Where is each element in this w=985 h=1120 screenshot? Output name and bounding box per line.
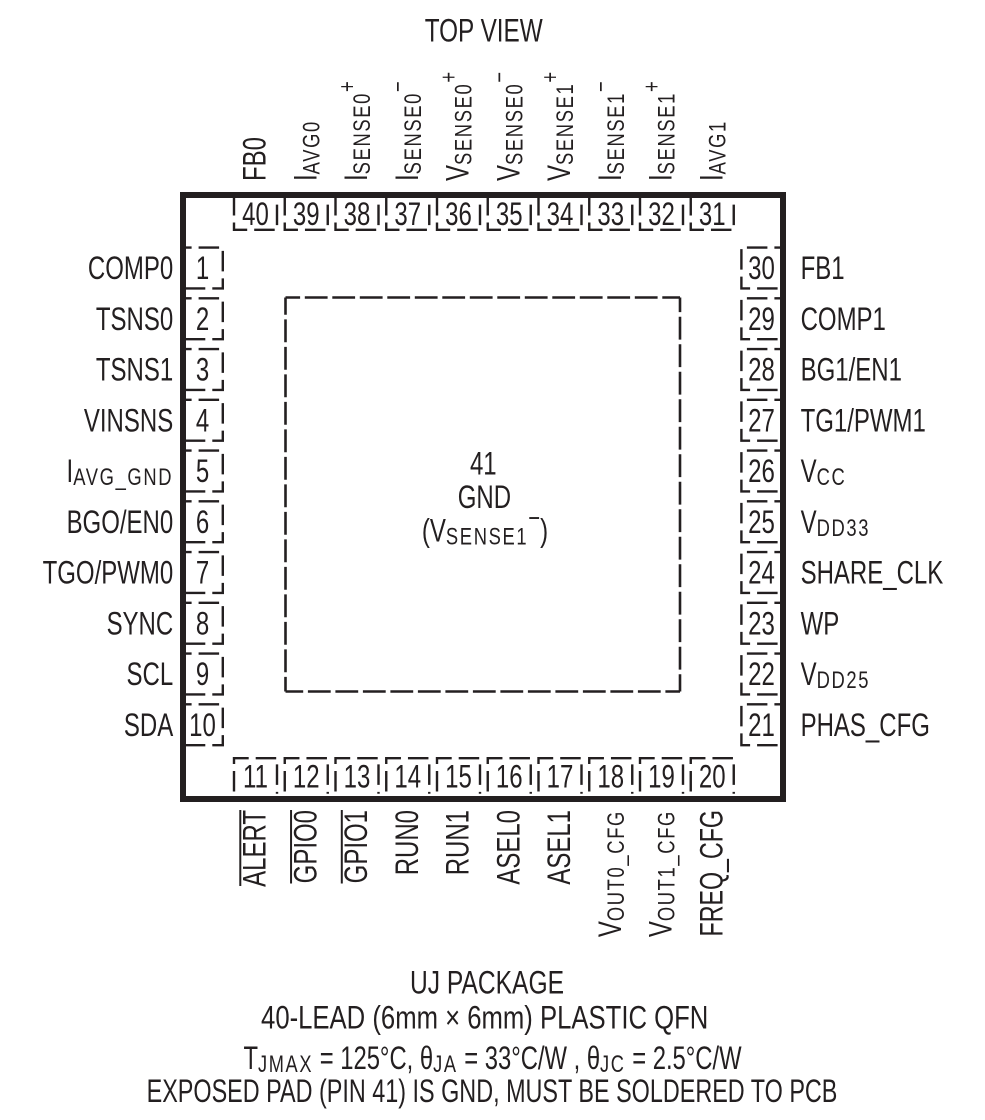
svg-text:12: 12 — [293, 758, 320, 794]
svg-text:FB1: FB1 — [801, 250, 845, 286]
svg-text:23: 23 — [748, 605, 775, 641]
svg-text:33: 33 — [597, 196, 624, 232]
svg-text:3: 3 — [196, 351, 209, 387]
svg-text:EXPOSED PAD (PIN 41) IS GND, M: EXPOSED PAD (PIN 41) IS GND, MUST BE SOL… — [147, 1073, 838, 1108]
svg-text:COMP0: COMP0 — [88, 250, 173, 286]
svg-text:22: 22 — [748, 656, 775, 692]
svg-text:21: 21 — [748, 706, 775, 742]
svg-text:41: 41 — [470, 445, 497, 481]
svg-text:WP: WP — [801, 605, 840, 641]
svg-text:BGO/EN0: BGO/EN0 — [67, 503, 174, 539]
svg-text:SCL: SCL — [127, 656, 174, 692]
svg-text:TG1/PWM1: TG1/PWM1 — [801, 402, 926, 438]
svg-text:8: 8 — [196, 605, 209, 641]
svg-text:BG1/EN1: BG1/EN1 — [801, 351, 902, 387]
svg-text:40: 40 — [242, 196, 269, 232]
svg-text:SYNC: SYNC — [107, 605, 174, 641]
svg-text:UJ PACKAGE: UJ PACKAGE — [410, 965, 564, 1001]
svg-text:31: 31 — [699, 196, 726, 232]
svg-text:39: 39 — [293, 196, 320, 232]
svg-text:14: 14 — [394, 758, 421, 794]
svg-text:GPIO0: GPIO0 — [287, 810, 323, 883]
svg-text:29: 29 — [748, 300, 775, 336]
svg-text:4: 4 — [196, 402, 209, 438]
svg-text:GPIO1: GPIO1 — [338, 810, 374, 883]
svg-text:TSNS0: TSNS0 — [96, 300, 173, 336]
svg-text:ASEL1: ASEL1 — [541, 810, 577, 885]
svg-text:FB0: FB0 — [236, 137, 272, 181]
svg-text:2: 2 — [196, 300, 209, 336]
svg-text:28: 28 — [748, 351, 775, 387]
svg-text:9: 9 — [196, 656, 209, 692]
svg-text:25: 25 — [748, 503, 775, 539]
svg-text:34: 34 — [547, 196, 574, 232]
svg-text:SDA: SDA — [124, 706, 173, 742]
svg-text:VINSNS: VINSNS — [84, 402, 173, 438]
svg-text:26: 26 — [748, 453, 775, 489]
svg-text:17: 17 — [547, 758, 574, 794]
svg-text:37: 37 — [394, 196, 421, 232]
svg-text:FREQ_CFG: FREQ_CFG — [694, 810, 729, 936]
svg-text:16: 16 — [496, 758, 523, 794]
svg-text:10: 10 — [189, 706, 216, 742]
svg-text:30: 30 — [748, 250, 775, 286]
svg-text:20: 20 — [699, 758, 726, 794]
svg-text:5: 5 — [196, 453, 209, 489]
svg-text:RUN0: RUN0 — [388, 810, 424, 875]
svg-text:PHAS_CFG: PHAS_CFG — [801, 706, 930, 742]
svg-text:24: 24 — [748, 554, 775, 590]
svg-text:32: 32 — [648, 196, 675, 232]
svg-text:TJMAX = 125°C, θJA = 33°C/W ,: TJMAX = 125°C, θJA = 33°C/W , θJC = 2.5°… — [243, 1040, 741, 1078]
svg-text:40-LEAD (6mm × 6mm) PLASTIC QF: 40-LEAD (6mm × 6mm) PLASTIC QFN — [261, 1001, 708, 1036]
svg-text:38: 38 — [344, 196, 371, 232]
svg-text:7: 7 — [196, 554, 209, 590]
svg-text:11: 11 — [243, 758, 268, 794]
svg-text:6: 6 — [196, 503, 209, 539]
svg-text:GND: GND — [458, 479, 511, 515]
svg-text:RUN1: RUN1 — [439, 810, 475, 875]
svg-text:ALERT: ALERT — [236, 810, 272, 887]
svg-text:TOP VIEW: TOP VIEW — [425, 14, 543, 50]
svg-text:18: 18 — [597, 758, 624, 794]
svg-text:COMP1: COMP1 — [801, 300, 886, 336]
svg-text:27: 27 — [748, 402, 775, 438]
svg-text:19: 19 — [648, 758, 675, 794]
svg-text:15: 15 — [445, 758, 472, 794]
svg-text:TSNS1: TSNS1 — [96, 351, 173, 387]
svg-text:36: 36 — [445, 196, 472, 232]
svg-text:ASEL0: ASEL0 — [490, 810, 526, 885]
svg-text:1: 1 — [196, 250, 209, 286]
svg-text:13: 13 — [344, 758, 371, 794]
svg-text:SHARE_CLK: SHARE_CLK — [801, 554, 944, 590]
svg-text:35: 35 — [496, 196, 523, 232]
svg-text:TGO/PWM0: TGO/PWM0 — [43, 554, 174, 590]
